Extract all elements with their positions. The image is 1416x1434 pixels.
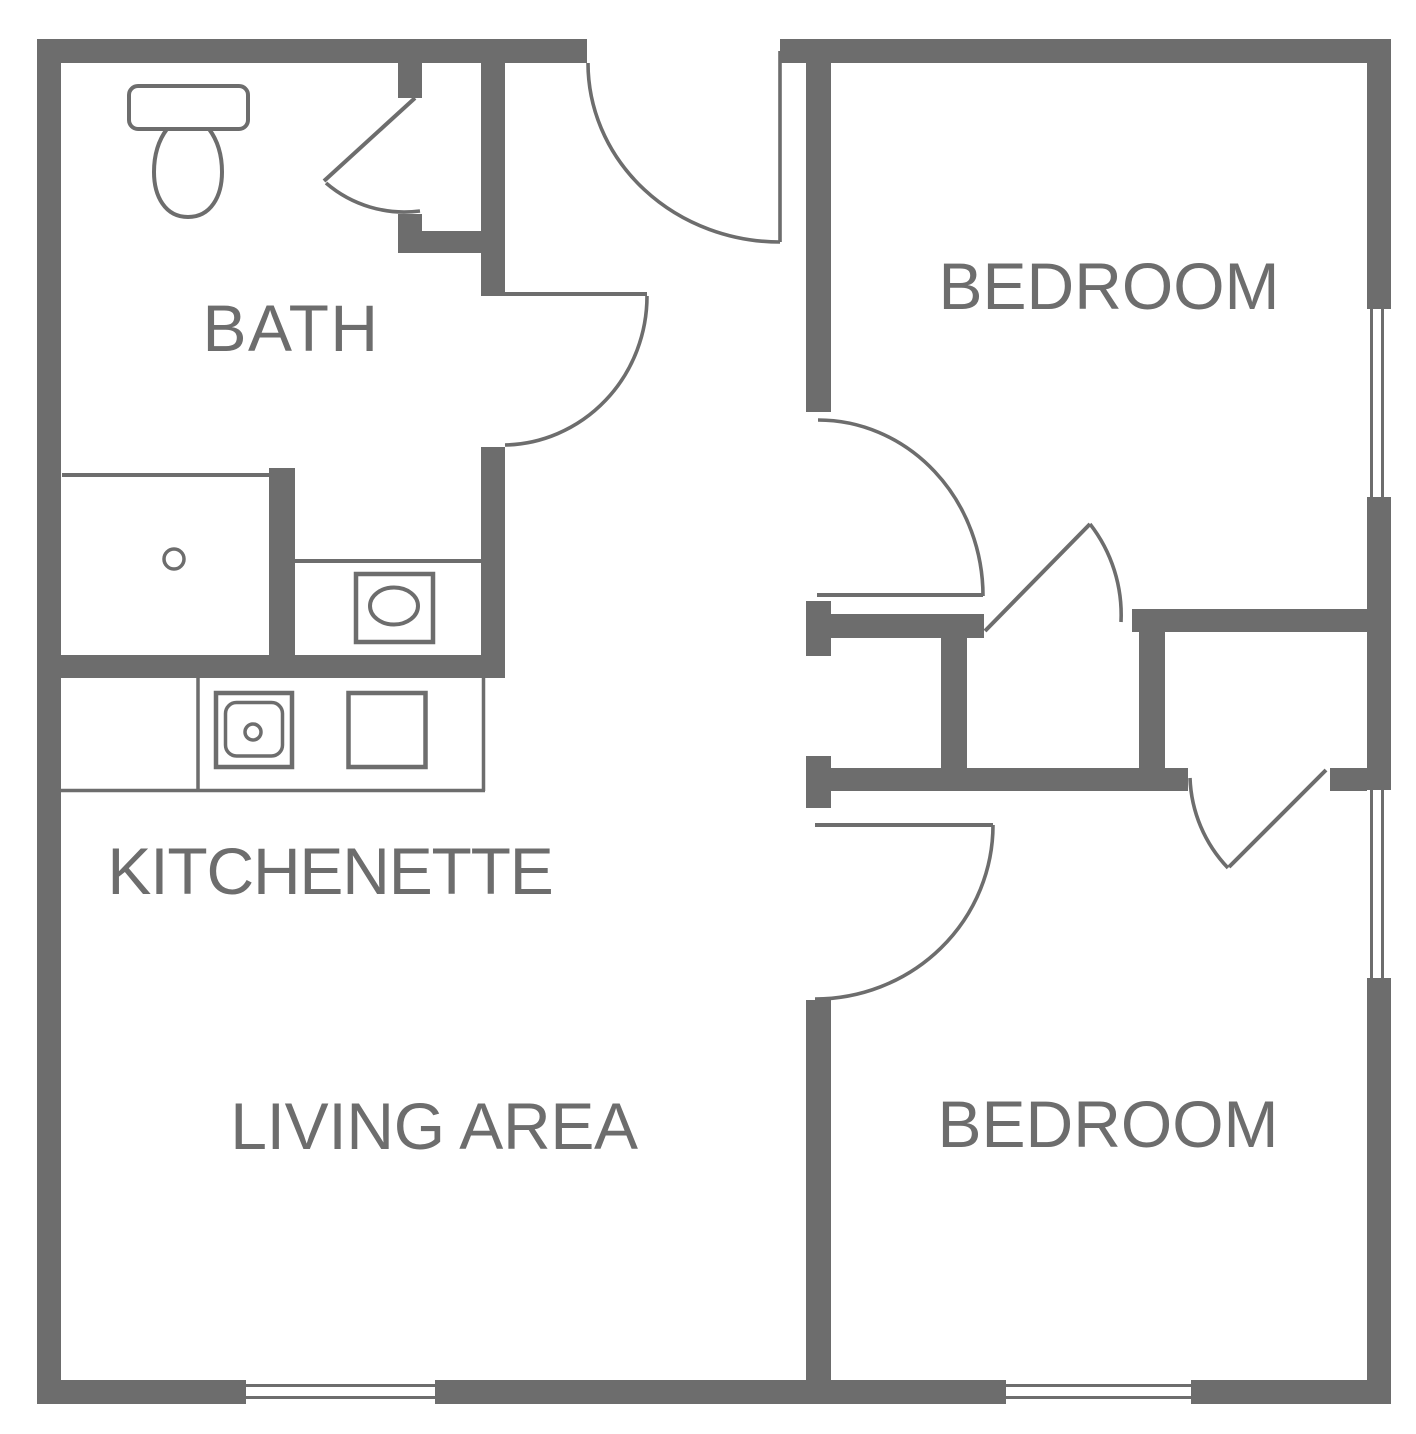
svg-text:BEDROOM: BEDROOM [937, 1087, 1278, 1161]
svg-text:BATH: BATH [202, 291, 379, 365]
svg-text:LIVING AREA: LIVING AREA [230, 1089, 638, 1163]
svg-text:KITCHENETTE: KITCHENETTE [107, 834, 552, 908]
svg-text:BEDROOM: BEDROOM [938, 249, 1279, 323]
